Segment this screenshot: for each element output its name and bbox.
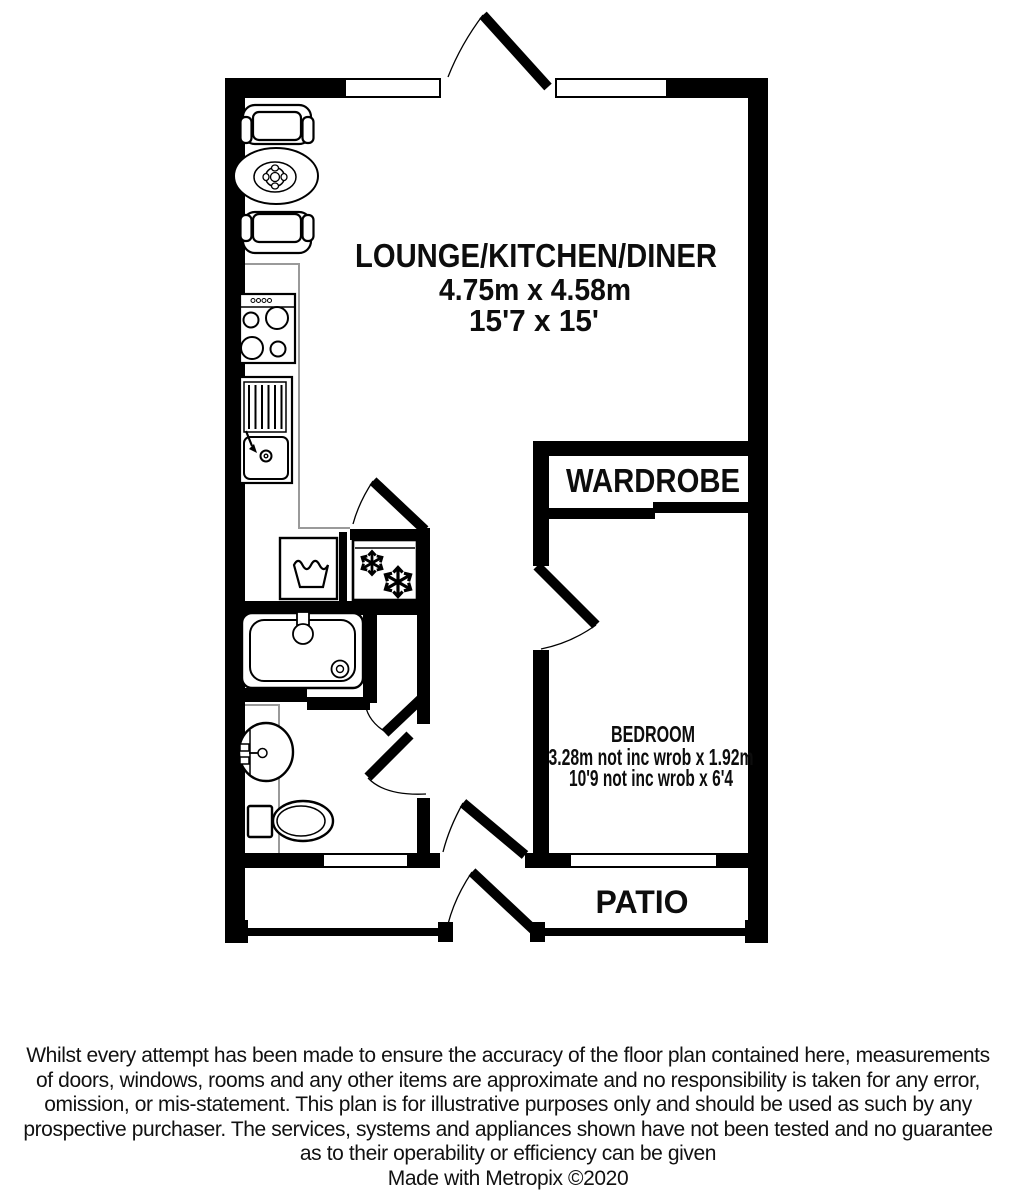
- room-label-patio: PATIO: [596, 884, 689, 920]
- floorplan-drawing: LOUNGE/KITCHEN/DINER 4.75m x 4.58m 15'7 …: [0, 0, 1016, 1016]
- armchair-icon: [241, 105, 314, 144]
- door-swing-patio: [448, 872, 537, 933]
- washbasin-icon: [239, 723, 293, 781]
- disclaimer-line: Whilst every attempt has been made to en…: [0, 1044, 1016, 1069]
- room-label-wardrobe: WARDROBE: [566, 462, 740, 499]
- fridge-freezer-icon: [353, 540, 417, 600]
- doors: [353, 15, 596, 933]
- door-swing-bedroom: [537, 566, 596, 649]
- bathtub-icon: [242, 612, 363, 688]
- disclaimer-line: prospective purchaser. The services, sys…: [0, 1118, 1016, 1143]
- disclaimer-line: as to their operability or efficiency ca…: [0, 1142, 1016, 1167]
- window: [570, 854, 717, 867]
- armchair-icon: [241, 212, 314, 253]
- door-swing-bathroom-b: [368, 735, 426, 794]
- wardrobe-sliding-doors: [549, 502, 750, 519]
- toilet-icon: [248, 801, 333, 841]
- room-size-bedroom-imperial: 10'9 not inc wrob x 6'4: [569, 765, 733, 791]
- kitchen-sink-icon: [240, 377, 292, 483]
- disclaimer-line: omission, or mis-statement. This plan is…: [0, 1093, 1016, 1118]
- room-label-lounge: LOUNGE/KITCHEN/DINER: [355, 237, 717, 274]
- disclaimer-line: of doors, windows, rooms and any other i…: [0, 1069, 1016, 1094]
- disclaimer: Whilst every attempt has been made to en…: [0, 1044, 1016, 1191]
- door-swing-hall-patio: [443, 803, 525, 855]
- door-swing-bathroom-a: [365, 698, 422, 733]
- room-size-lounge-metric: 4.75m x 4.58m: [439, 272, 631, 307]
- cooker-icon: [240, 294, 295, 363]
- window: [323, 854, 408, 867]
- door-swing-hall: [353, 481, 425, 530]
- window: [345, 79, 440, 97]
- credit-line: Made with Metropix ©2020: [0, 1167, 1016, 1192]
- door-swing-entrance: [448, 15, 548, 87]
- dining-table-icon: [234, 148, 318, 204]
- washing-machine-icon: [280, 538, 337, 599]
- window: [556, 79, 667, 97]
- floorplan-page: LOUNGE/KITCHEN/DINER 4.75m x 4.58m 15'7 …: [0, 0, 1016, 1200]
- room-size-lounge-imperial: 15'7 x 15': [469, 303, 599, 338]
